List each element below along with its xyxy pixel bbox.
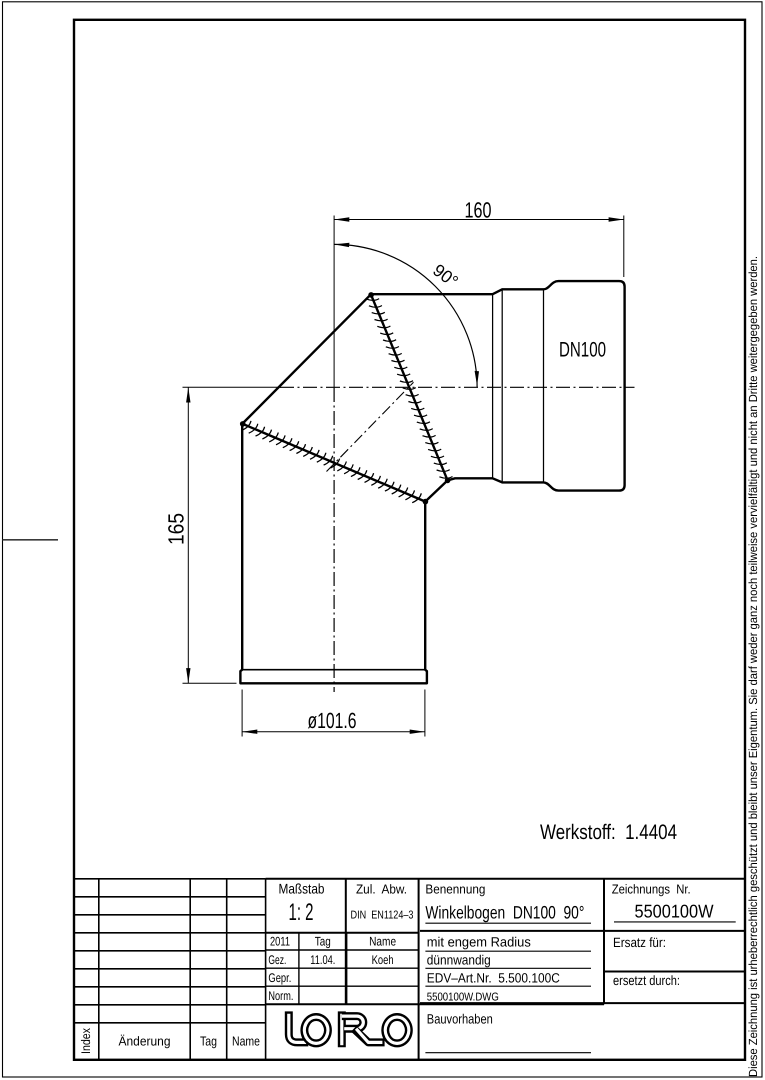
svg-text:5500100W.DWG: 5500100W.DWG [427,991,499,1003]
svg-text:Gepr.: Gepr. [268,971,291,985]
svg-text:DIN EN1124–3: DIN EN1124–3 [351,909,414,921]
svg-text:mit engem Radius: mit engem Radius [427,935,531,950]
svg-text:Zul. Abw.: Zul. Abw. [356,881,407,896]
svg-text:Werkstoff: 1.4404: Werkstoff: 1.4404 [540,821,677,844]
svg-text:Gez.: Gez. [268,953,286,967]
svg-text:Diese Zeichnung ist urheberrec: Diese Zeichnung ist urheberrechtlich ges… [746,256,760,1077]
svg-text:ersetzt durch:: ersetzt durch: [613,973,680,988]
svg-text:Winkelbogen DN100 90°: Winkelbogen DN100 90° [425,903,584,923]
svg-text:Tag: Tag [315,935,331,949]
svg-text:165: 165 [164,513,189,545]
svg-text:Zeichnungs Nr.: Zeichnungs Nr. [612,882,691,897]
svg-text:EDV–Art.Nr. 5.500.100C: EDV–Art.Nr. 5.500.100C [427,971,560,986]
svg-text:Ersatz für:: Ersatz für: [613,935,666,950]
svg-text:160: 160 [465,197,492,222]
svg-text:11.04.: 11.04. [310,953,335,967]
svg-text:DN100: DN100 [559,339,606,362]
svg-text:Name: Name [232,1034,260,1049]
svg-text:dünnwandig: dünnwandig [427,953,491,968]
svg-text:2011: 2011 [270,935,290,949]
svg-text:5500100W: 5500100W [635,900,714,921]
svg-text:Benennung: Benennung [425,882,485,897]
svg-text:Bauvorhaben: Bauvorhaben [427,1011,493,1026]
svg-text:Maßstab: Maßstab [279,880,325,896]
svg-text:Koeh: Koeh [372,953,394,967]
svg-text:Norm.: Norm. [268,989,293,1003]
svg-text:Name: Name [369,935,396,949]
svg-text:1: 2: 1: 2 [289,899,314,926]
svg-text:Index: Index [79,1027,93,1054]
svg-text:Änderung: Änderung [119,1034,171,1049]
svg-text:Tag: Tag [200,1034,217,1049]
svg-text:ø101.6: ø101.6 [308,708,357,733]
